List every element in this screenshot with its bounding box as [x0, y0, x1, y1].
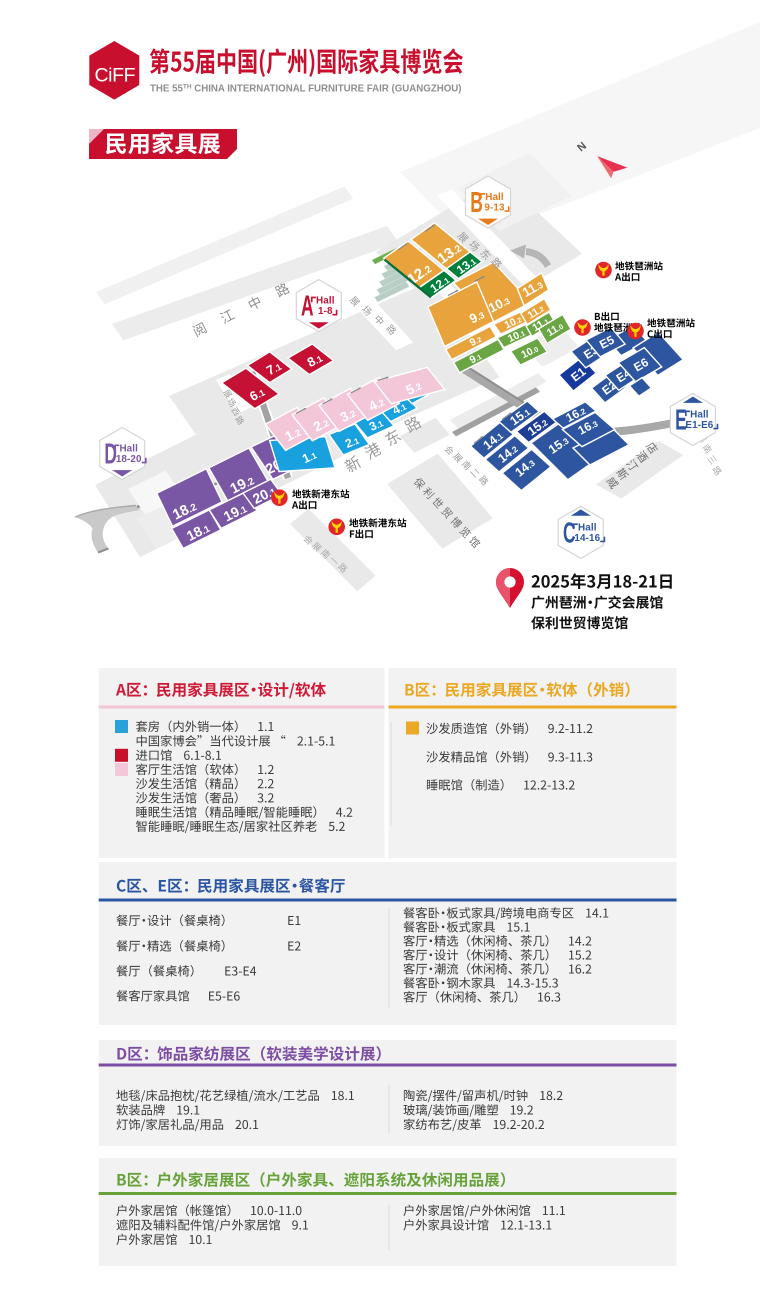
svg-text:E1-E6: E1-E6 — [685, 420, 713, 431]
svg-text:A: A — [301, 290, 314, 323]
svg-text:1-8: 1-8 — [318, 306, 333, 317]
svg-text:Hall: Hall — [578, 522, 597, 533]
svg-text:18-20: 18-20 — [116, 454, 142, 465]
svg-text:CiFF: CiFF — [94, 64, 135, 86]
svg-text:Hall: Hall — [690, 410, 709, 421]
svg-text:THE 55TH CHINA INTERNATIONAL F: THE 55TH CHINA INTERNATIONAL FURNITURE F… — [150, 84, 462, 95]
svg-text:Hall: Hall — [119, 444, 138, 455]
svg-text:14-16: 14-16 — [574, 533, 600, 544]
svg-text:9-13: 9-13 — [484, 203, 505, 214]
svg-text:Hall: Hall — [485, 192, 504, 203]
svg-text:B: B — [470, 187, 483, 220]
svg-text:Hall: Hall — [316, 296, 335, 307]
